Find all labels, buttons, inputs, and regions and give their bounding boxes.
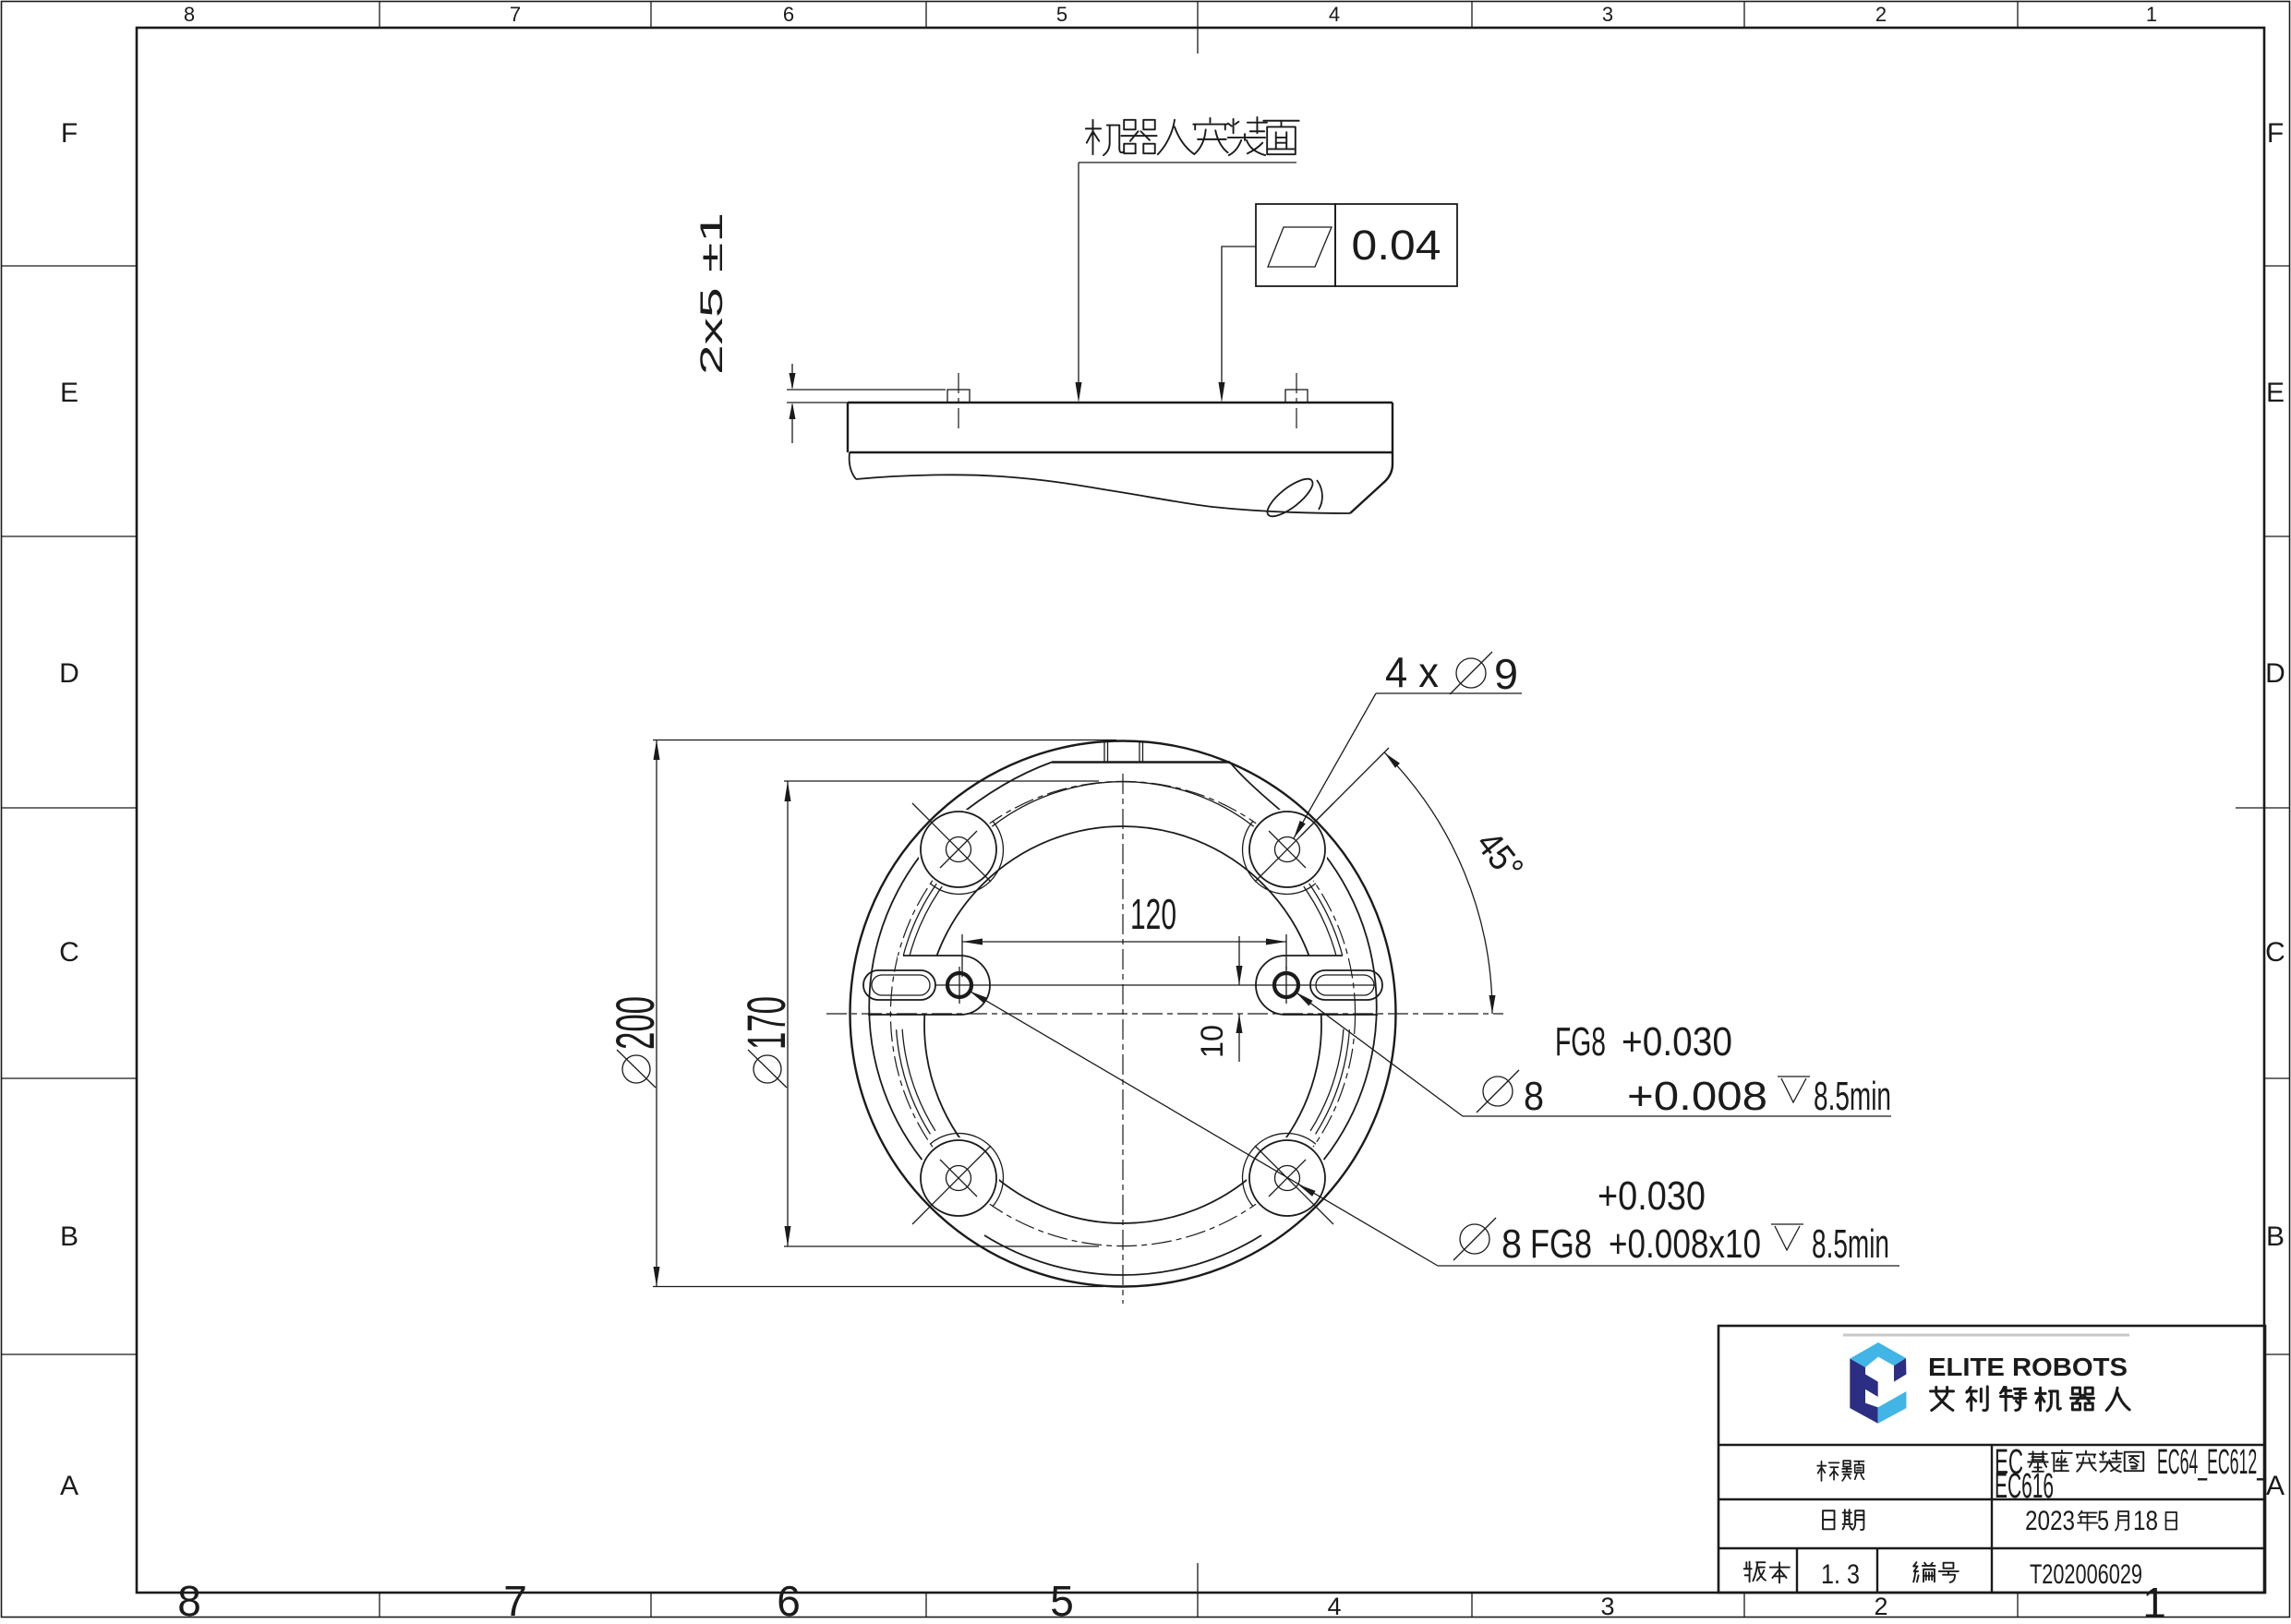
svg-text:170: 170 [737,996,797,1050]
svg-text:3: 3 [1600,1593,1614,1619]
svg-text:D: D [2265,658,2285,689]
svg-text:E: E [2266,378,2285,408]
svg-text:2: 2 [1875,3,1887,26]
svg-text:5: 5 [1056,3,1067,26]
svg-text:8: 8 [177,1577,201,1619]
svg-text:ELITE ROBOTS: ELITE ROBOTS [1928,1353,2128,1381]
svg-text:B: B [60,1221,78,1252]
svg-text:1. 3: 1. 3 [1821,1559,1860,1590]
svg-text:5: 5 [2097,1506,2109,1536]
svg-text:8.5min: 8.5min [1814,1074,1891,1119]
svg-text:4 x: 4 x [1385,648,1439,696]
svg-text:EC616: EC616 [1995,1467,2054,1506]
svg-text:E: E [60,378,78,408]
svg-text:+0.030: +0.030 [1598,1173,1706,1219]
svg-text:C: C [59,937,79,968]
svg-text:2x5 ±1: 2x5 ±1 [694,212,730,375]
svg-text:EC64_EC612_: EC64_EC612_ [2157,1443,2266,1482]
svg-text:18: 18 [2133,1506,2158,1536]
svg-text:4: 4 [1329,3,1340,26]
svg-text:8: 8 [184,3,195,26]
svg-text:2: 2 [1874,1593,1887,1619]
svg-text:A: A [2266,1471,2285,1501]
svg-text:9: 9 [1494,650,1518,698]
svg-text:+0.008: +0.008 [1627,1074,1767,1119]
svg-text:8: 8 [1501,1221,1522,1267]
svg-text:2023: 2023 [2025,1506,2075,1536]
svg-text:0.04: 0.04 [1352,222,1441,269]
svg-text:7: 7 [510,3,521,26]
svg-text:1: 1 [2146,3,2157,26]
svg-text:1: 1 [2142,1579,2166,1619]
svg-text:T202006029: T202006029 [2030,1559,2142,1590]
svg-text:200: 200 [606,996,666,1050]
svg-text:7: 7 [503,1577,527,1619]
svg-text:C: C [2265,937,2285,968]
svg-text:FG8: FG8 [1530,1221,1592,1267]
svg-text:4: 4 [1327,1593,1341,1619]
svg-text:A: A [60,1471,78,1501]
svg-text:10: 10 [1195,1025,1230,1058]
svg-text:3: 3 [1602,3,1613,26]
svg-text:F: F [2267,118,2284,149]
svg-text:D: D [59,658,79,689]
svg-text:F: F [61,118,78,149]
svg-text:8: 8 [1524,1074,1544,1119]
svg-text:B: B [2266,1221,2285,1252]
svg-text:+0.008x10: +0.008x10 [1609,1221,1761,1267]
svg-text:6: 6 [777,1577,801,1619]
svg-text:8.5min: 8.5min [1812,1221,1889,1267]
svg-text:FG8: FG8 [1555,1019,1606,1065]
svg-text:+0.030: +0.030 [1622,1019,1732,1065]
svg-text:5: 5 [1050,1577,1074,1619]
svg-text:6: 6 [783,3,794,26]
svg-text:120: 120 [1130,890,1176,938]
